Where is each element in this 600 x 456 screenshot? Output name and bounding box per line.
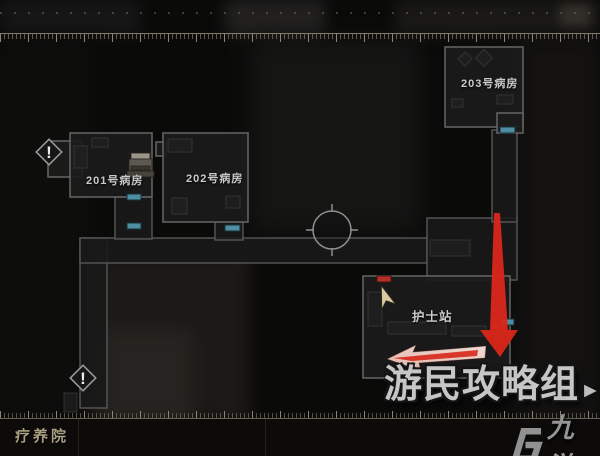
publisher-logo: 九游 [508,406,600,456]
room-label-202: 202号病房 [186,170,243,186]
area-label: 疗养院 [15,425,69,446]
corridor-203-down [492,130,517,222]
bottom-bar-separator [265,419,266,456]
room-label-nurse-station: 护士站 [412,306,453,325]
watermark-text: 游民攻略组► [384,353,600,408]
door-marker-blue [127,194,141,200]
door-marker-blue [127,223,141,229]
corridor-main [80,238,427,263]
door-marker-red [377,276,391,282]
door-marker-blue [500,127,515,133]
watermark-label: 游民攻略组 [384,364,579,406]
alert-glyph: ! [80,369,86,388]
game-map-screen: ! ! 201号病房 202号病房 203号病房 护士站 疗养院 游民攻略组► [0,0,600,456]
stub-201 [115,197,152,239]
publisher-logo-icon [508,424,545,456]
door-marker-blue [225,225,240,231]
room-label-203: 203号病房 [461,75,518,91]
publisher-logo-text: 九游 [547,406,600,456]
watermark-pointer-icon: ► [580,379,600,402]
room-label-201: 201号病房 [86,172,143,188]
bottom-bar-separator [78,419,79,456]
alert-glyph: ! [46,143,52,162]
